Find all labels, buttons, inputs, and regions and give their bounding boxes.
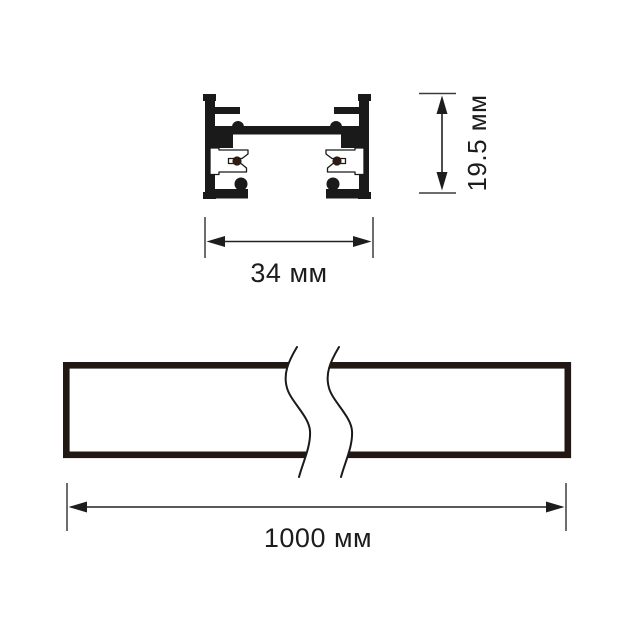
drawing-canvas: 19.5 мм 34 мм 1000 мм	[0, 0, 630, 630]
right-insulator-group	[326, 148, 364, 175]
dimension-drawing: 19.5 мм 34 мм 1000 мм	[0, 0, 630, 630]
left-top-flange	[214, 107, 240, 114]
left-conductor	[232, 156, 241, 165]
left-bottom-hook	[214, 189, 248, 199]
left-hook-tip	[235, 178, 248, 191]
right-top-flange	[334, 107, 360, 114]
length-arrow-left-icon	[69, 502, 88, 513]
web-bump-left	[232, 121, 244, 133]
height-arrow-up-icon	[437, 96, 448, 115]
left-insulator-group	[210, 148, 248, 175]
right-conductor	[332, 156, 341, 165]
right-insulator	[326, 148, 364, 175]
right-bottom-hook	[326, 189, 360, 199]
right-hook-tip	[327, 178, 340, 191]
left-wall	[205, 94, 215, 199]
width-dimension: 34 мм	[205, 217, 373, 288]
length-dimension: 1000 мм	[67, 483, 566, 553]
height-arrow-down-icon	[437, 172, 448, 191]
length-arrow-right-icon	[546, 502, 565, 513]
height-dimension-label: 19.5 мм	[462, 94, 492, 191]
track-side-view	[66, 347, 568, 477]
web-bump-right	[330, 121, 342, 133]
length-dimension-label: 1000 мм	[264, 523, 372, 553]
width-arrow-left-icon	[207, 236, 226, 247]
track-cross-section	[203, 94, 371, 199]
width-dimension-label: 34 мм	[250, 258, 327, 288]
height-dimension: 19.5 мм	[419, 94, 492, 194]
right-wall	[359, 94, 369, 199]
left-insulator	[210, 148, 248, 175]
width-arrow-right-icon	[353, 236, 372, 247]
